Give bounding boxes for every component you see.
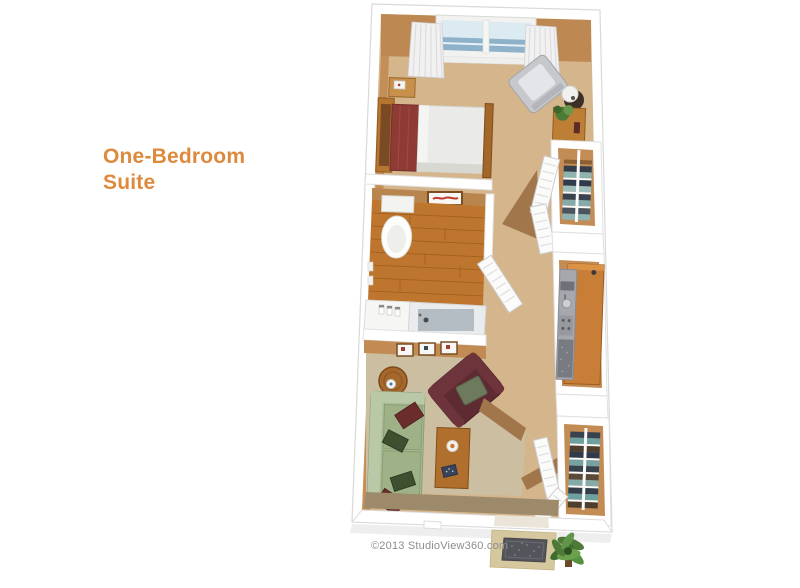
wall-step [424,521,441,529]
nightstand [389,78,416,98]
bed [390,100,494,177]
bathroom-picture [428,192,462,205]
doorway-threshold [494,515,549,528]
plant-cabinet [552,104,585,144]
vanity [364,300,412,332]
kitchenette [553,252,607,396]
left-curtain-icon [408,22,444,78]
copyright-text: ©2013 StudioView360.com [371,540,508,552]
coffee-table [435,427,470,488]
cooktop-icon [559,315,574,335]
floor-plan-illustration [0,0,800,588]
linen-shelves [562,150,592,223]
microwave-icon [560,281,574,290]
doormat-icon [502,538,547,562]
bathroom-right-wall [484,194,494,262]
wardrobe-shelves [568,427,601,510]
window-mullion [483,20,489,53]
wall-stub-2 [556,394,608,418]
wall-stub-1 [552,232,604,254]
floor-plan-page: One-Bedroom Suite [0,0,800,588]
bed-blanket [390,104,419,171]
table-lamp-icon [562,86,578,102]
toilet-icon [380,195,414,258]
round-side-table [379,367,407,395]
living-pictures [397,342,457,356]
sink-icon [562,299,571,308]
refrigerator-icon [557,339,573,378]
